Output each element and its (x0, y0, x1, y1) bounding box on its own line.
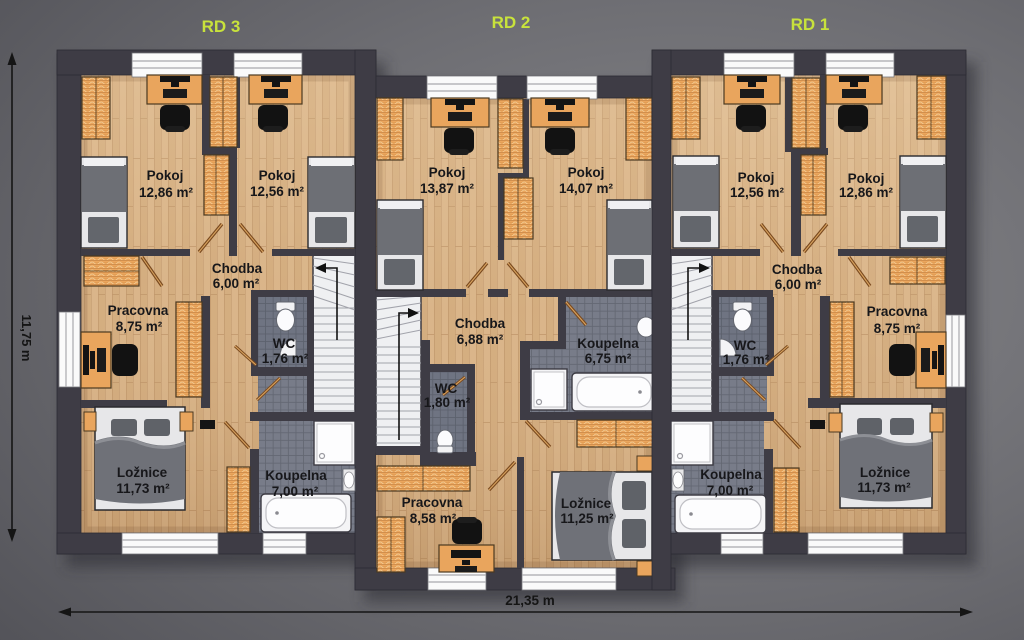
svg-text:RD 2: RD 2 (492, 13, 531, 32)
svg-text:Pokoj: Pokoj (568, 165, 605, 180)
svg-text:Pracovna: Pracovna (108, 303, 169, 318)
svg-text:Pokoj: Pokoj (147, 168, 184, 183)
svg-text:WC: WC (273, 336, 296, 351)
svg-text:1,76 m²: 1,76 m² (262, 351, 309, 366)
svg-text:Pokoj: Pokoj (429, 165, 466, 180)
svg-text:Koupelna: Koupelna (265, 468, 327, 483)
svg-text:7,00 m²: 7,00 m² (272, 484, 319, 499)
svg-text:8,75 m²: 8,75 m² (874, 321, 921, 336)
svg-text:Chodba: Chodba (212, 261, 263, 276)
svg-text:Ložnice: Ložnice (561, 496, 612, 511)
svg-text:Koupelna: Koupelna (577, 336, 639, 351)
svg-text:13,87 m²: 13,87 m² (420, 181, 475, 196)
svg-text:RD 3: RD 3 (202, 17, 241, 36)
svg-text:Chodba: Chodba (455, 316, 506, 331)
svg-text:12,86 m²: 12,86 m² (839, 185, 894, 200)
svg-text:6,75 m²: 6,75 m² (585, 351, 632, 366)
svg-text:WC: WC (734, 338, 757, 353)
svg-text:6,88 m²: 6,88 m² (457, 332, 504, 347)
svg-text:1,76 m²: 1,76 m² (723, 352, 770, 367)
svg-text:11,25 m²: 11,25 m² (560, 511, 614, 526)
svg-text:Koupelna: Koupelna (700, 467, 762, 482)
svg-text:11,75 m: 11,75 m (19, 315, 34, 362)
svg-text:14,07 m²: 14,07 m² (559, 181, 614, 196)
svg-text:Chodba: Chodba (772, 262, 823, 277)
svg-text:21,35 m: 21,35 m (505, 593, 555, 608)
svg-text:7,00 m²: 7,00 m² (707, 483, 754, 498)
svg-text:Ložnice: Ložnice (860, 465, 911, 480)
svg-text:Pokoj: Pokoj (848, 171, 885, 186)
svg-text:Pracovna: Pracovna (402, 495, 463, 510)
svg-text:8,75 m²: 8,75 m² (116, 319, 163, 334)
svg-text:12,86 m²: 12,86 m² (139, 185, 194, 200)
svg-text:RD 1: RD 1 (791, 15, 830, 34)
svg-text:12,56 m²: 12,56 m² (250, 184, 305, 199)
svg-text:11,73 m²: 11,73 m² (116, 481, 170, 496)
svg-text:Ložnice: Ložnice (117, 465, 168, 480)
svg-text:6,00 m²: 6,00 m² (213, 276, 260, 291)
svg-text:Pracovna: Pracovna (867, 304, 928, 319)
svg-text:Pokoj: Pokoj (259, 168, 296, 183)
svg-text:6,00 m²: 6,00 m² (775, 277, 822, 292)
svg-text:12,56 m²: 12,56 m² (730, 185, 785, 200)
svg-text:1,80 m²: 1,80 m² (424, 395, 471, 410)
svg-text:Pokoj: Pokoj (738, 170, 775, 185)
svg-text:WC: WC (435, 381, 458, 396)
svg-text:8,58 m²: 8,58 m² (410, 511, 457, 526)
svg-text:11,73 m²: 11,73 m² (857, 480, 911, 495)
